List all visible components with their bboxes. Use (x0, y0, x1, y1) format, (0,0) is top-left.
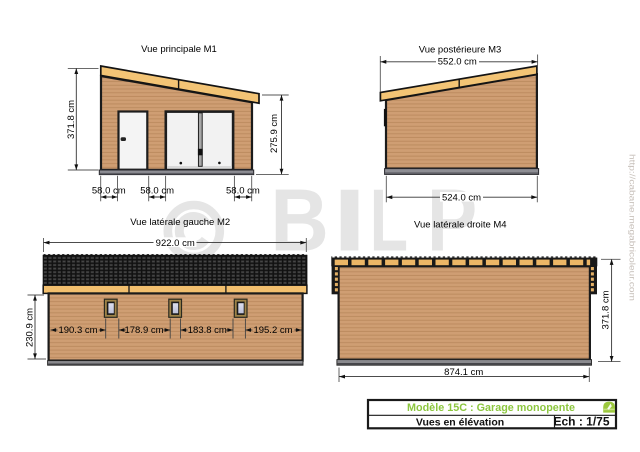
svg-text:275.9 cm: 275.9 cm (269, 114, 280, 153)
svg-text:922.0 cm: 922.0 cm (156, 238, 195, 249)
svg-text:Vue principale M1: Vue principale M1 (141, 44, 217, 55)
svg-text:230.9 cm: 230.9 cm (24, 308, 35, 347)
svg-text:58.0 cm: 58.0 cm (226, 185, 260, 196)
svg-text:Modèle 15C : Garage monopente: Modèle 15C : Garage monopente (407, 402, 575, 414)
svg-text:183.8 cm: 183.8 cm (188, 325, 227, 336)
svg-text:Vue latérale gauche M2: Vue latérale gauche M2 (130, 217, 230, 228)
svg-text:552.0 cm: 552.0 cm (438, 57, 477, 68)
svg-text:178.9 cm: 178.9 cm (124, 325, 163, 336)
svg-text:Vue latérale droite M4: Vue latérale droite M4 (414, 219, 507, 230)
svg-text:http://cabane.megabricoleur.co: http://cabane.megabricoleur.com (628, 154, 638, 301)
svg-text:190.3 cm: 190.3 cm (58, 325, 97, 336)
svg-text:Ech : 1/75: Ech : 1/75 (553, 415, 609, 429)
svg-text:L: L (370, 171, 408, 270)
svg-text:58.0 cm: 58.0 cm (140, 185, 174, 196)
svg-text:Vues en élévation: Vues en élévation (416, 416, 504, 428)
svg-text:195.2 cm: 195.2 cm (253, 325, 292, 336)
svg-text:Vue postérieure M3: Vue postérieure M3 (419, 45, 502, 56)
svg-text:371.8 cm: 371.8 cm (66, 100, 77, 139)
svg-text:874.1 cm: 874.1 cm (444, 367, 483, 378)
svg-text:I: I (333, 171, 367, 270)
svg-text:524.0 cm: 524.0 cm (442, 192, 481, 203)
svg-text:371.8 cm: 371.8 cm (600, 290, 611, 329)
svg-text:58.0 cm: 58.0 cm (92, 185, 126, 196)
